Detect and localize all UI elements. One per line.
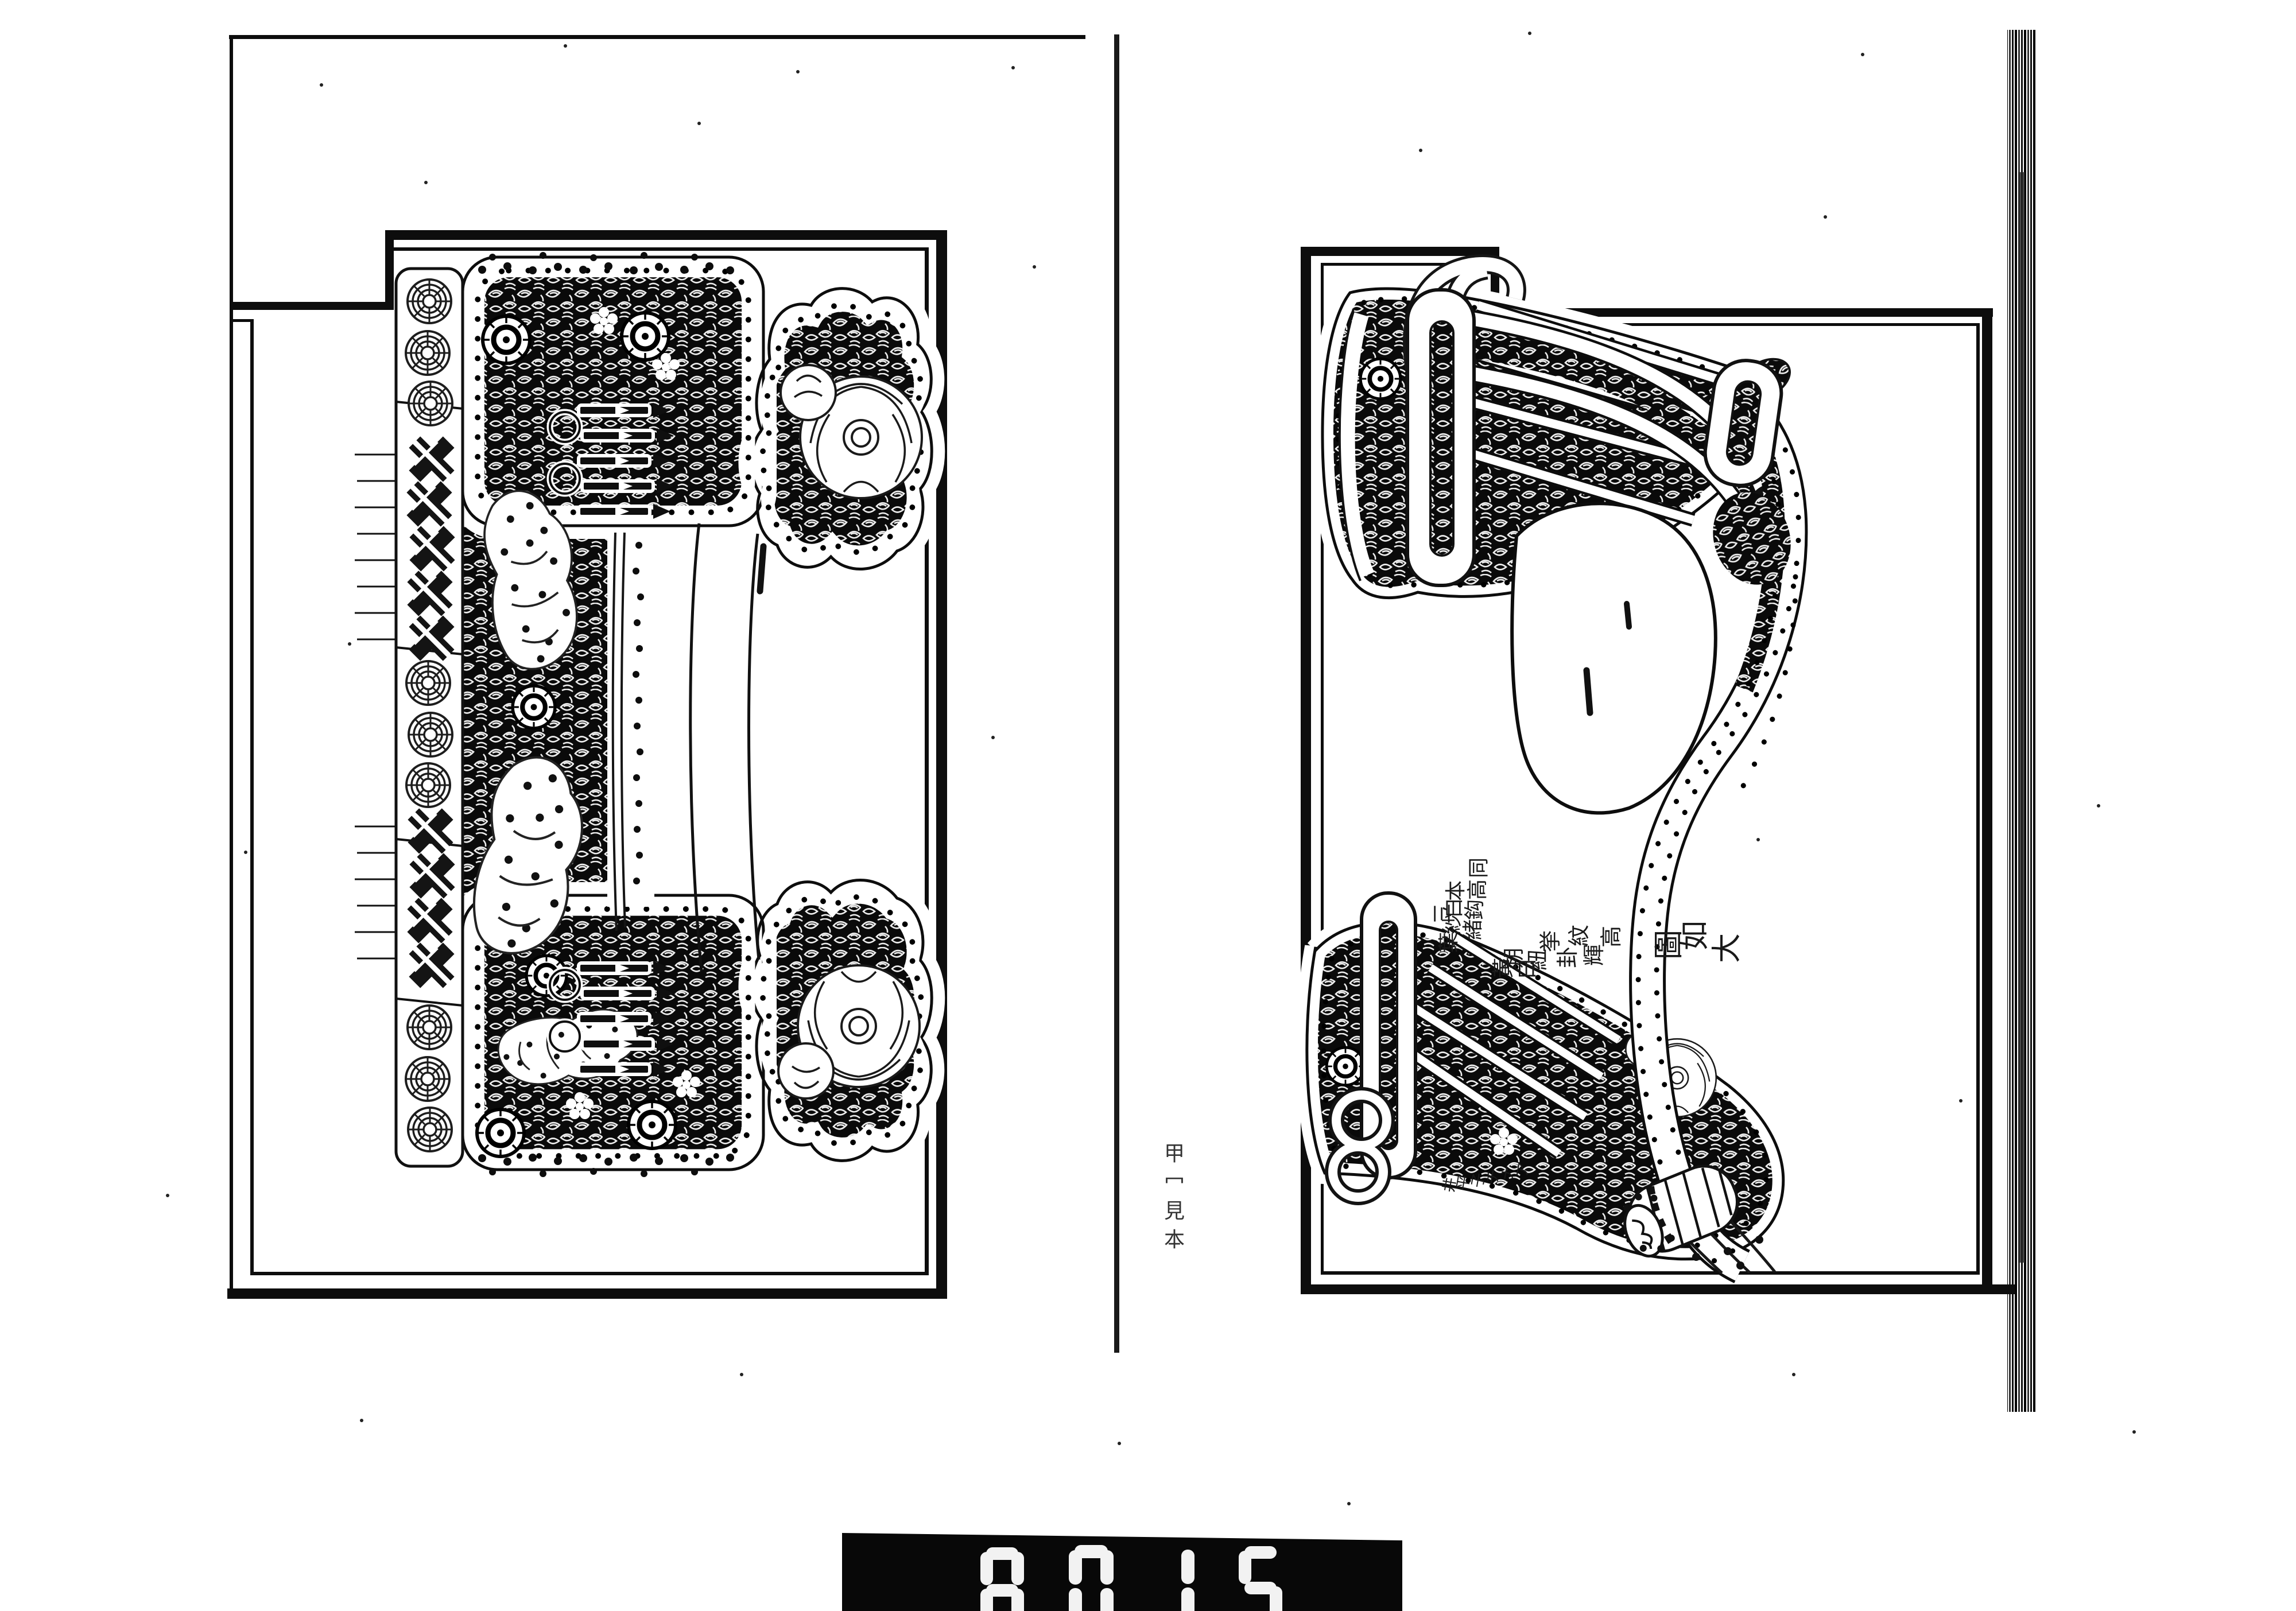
svg-text:葉: 葉 — [1437, 932, 1460, 953]
svg-text:高: 高 — [1466, 879, 1489, 900]
svg-text:甲: 甲 — [1164, 1142, 1185, 1165]
svg-text:冖: 冖 — [1164, 1171, 1185, 1194]
svg-text:黃: 黃 — [1492, 957, 1516, 979]
svg-text:三: 三 — [1431, 903, 1454, 924]
svg-text:輝: 輝 — [1583, 944, 1607, 966]
svg-text:見: 見 — [1164, 1199, 1185, 1222]
svg-text:本: 本 — [1164, 1228, 1185, 1251]
svg-text:鈎: 鈎 — [1463, 899, 1486, 920]
svg-text:紋: 紋 — [1568, 925, 1592, 946]
svg-text:大: 大 — [1711, 933, 1744, 963]
svg-text:圖: 圖 — [1653, 930, 1686, 960]
svg-text:同: 同 — [1467, 857, 1490, 878]
svg-text:井: 井 — [1440, 1176, 1459, 1194]
svg-text:緒: 緒 — [1461, 919, 1484, 940]
